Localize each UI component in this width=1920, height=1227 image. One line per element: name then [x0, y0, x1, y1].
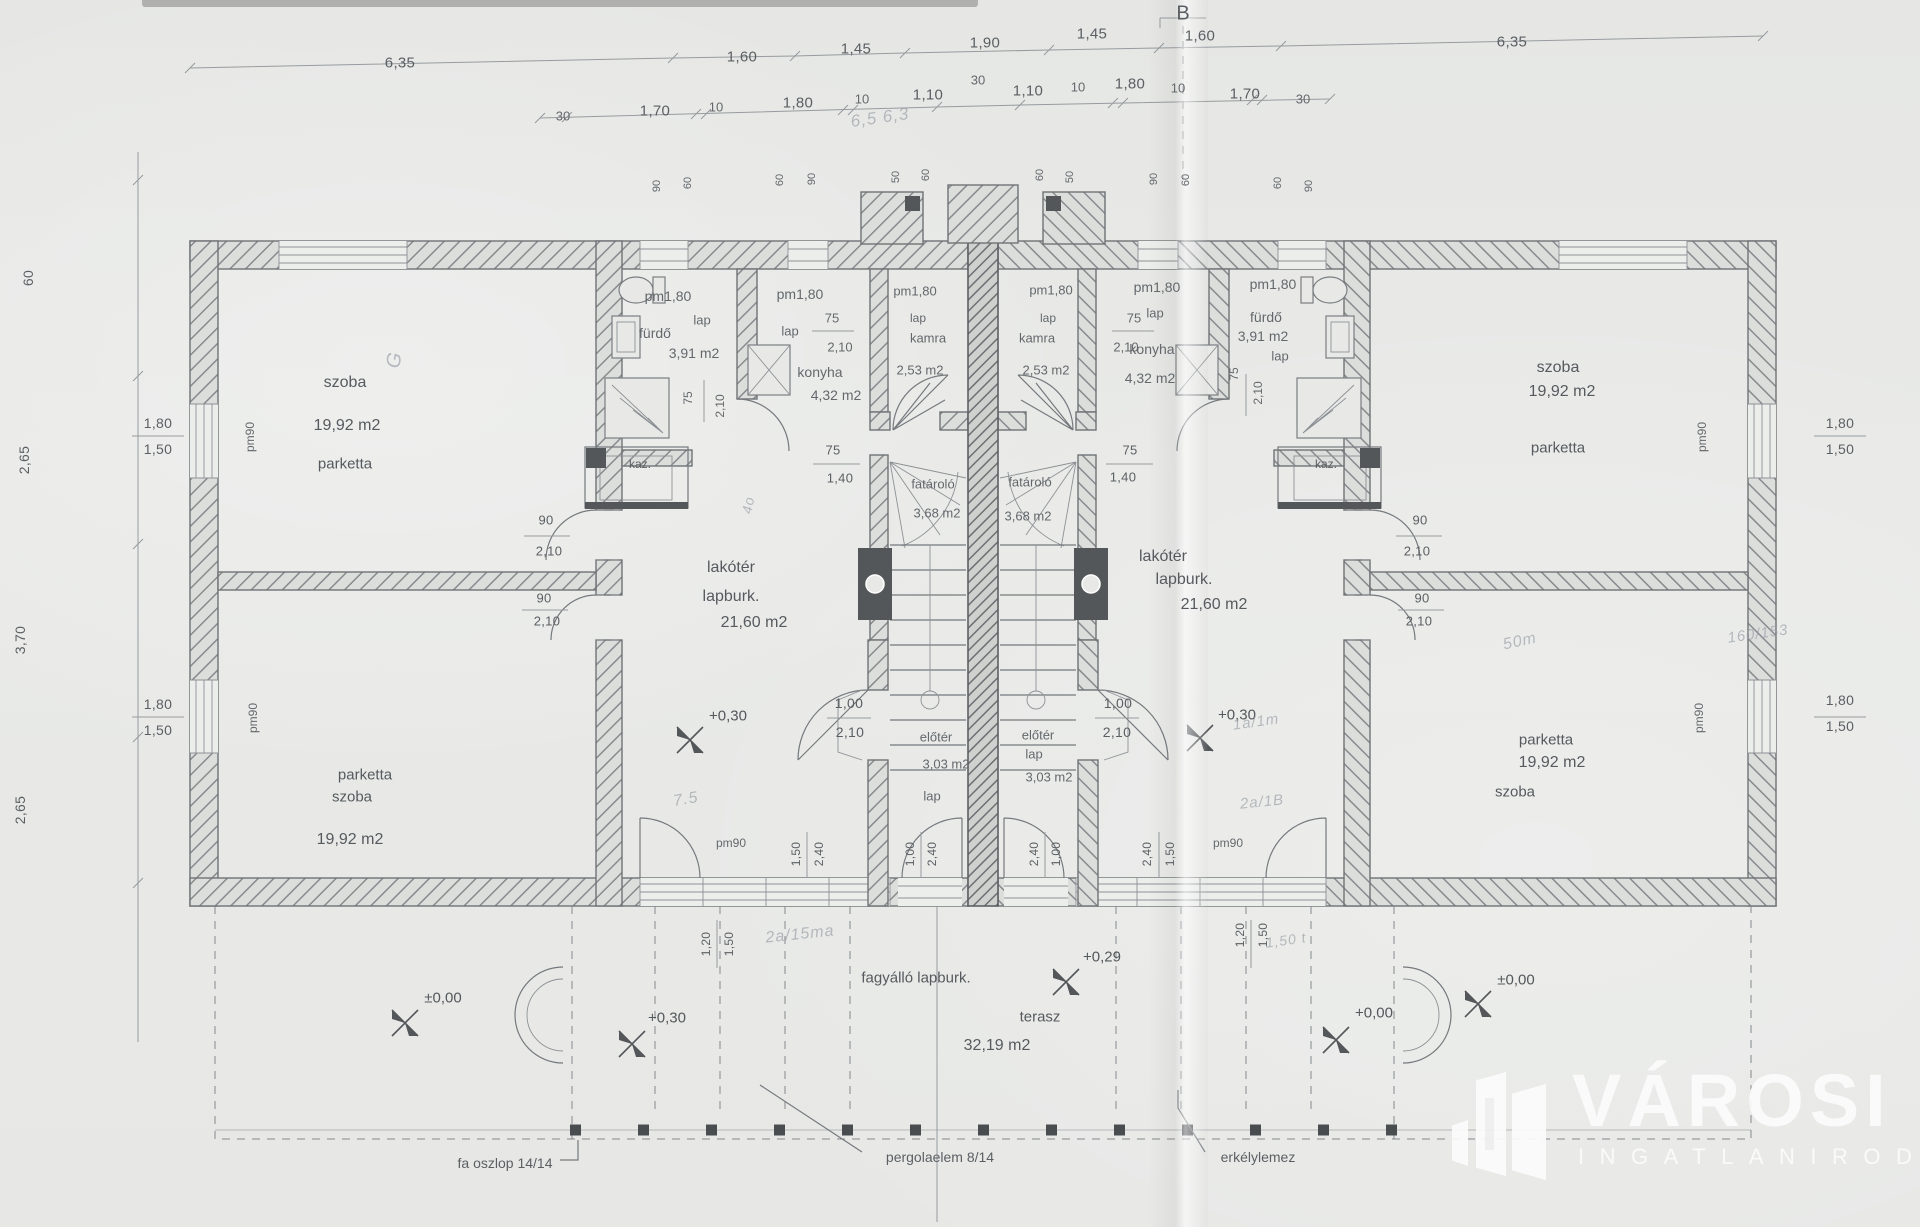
label-dim: 75: [1122, 443, 1137, 458]
label-room: lakótér: [1139, 548, 1187, 566]
label-dim: 1,90: [970, 35, 1000, 52]
label-hand: 7.5: [672, 789, 700, 811]
label-sml: 75: [1227, 367, 1241, 380]
label-ann: kaz.: [629, 457, 651, 471]
plan-labels-layer: 6,351,601,451,901,451,606,35301,70101,80…: [0, 0, 1920, 1227]
label-sml: konyha: [797, 364, 842, 380]
label-vert: 90: [1148, 173, 1160, 185]
label-dim: 2,40: [1027, 842, 1041, 867]
label-dim: 90: [538, 513, 553, 528]
label-sml: pm1,80: [893, 284, 936, 299]
label-hand: 1,50 t: [1265, 929, 1308, 951]
label-vert: 60: [920, 169, 932, 181]
label-dim: 1,20: [699, 932, 713, 957]
label-dim: 1,50: [144, 722, 172, 738]
buildings-icon: [1448, 1062, 1558, 1182]
label-lvl: ±0,00: [1497, 972, 1534, 989]
label-sml: 3,68 m2: [1005, 509, 1052, 524]
label-dim: 2,10: [534, 614, 561, 629]
label-dim: 1,10: [1013, 83, 1043, 100]
label-vert: 90: [1303, 180, 1315, 192]
label-hand: G: [382, 350, 408, 370]
label-dim: 1,60: [727, 49, 757, 66]
label-sml: 4,32 m2: [1125, 370, 1176, 386]
label-dim: 1,00: [835, 695, 863, 711]
label-dim: 90: [1414, 591, 1429, 606]
label-lvl: +0,30: [648, 1010, 686, 1027]
label-room: 19,92 m2: [1519, 754, 1586, 772]
label-room: 32,19 m2: [964, 1037, 1031, 1055]
label-hand: 2a/1B: [1239, 791, 1285, 813]
label-dim: 1,80: [1115, 76, 1145, 93]
label-sml: előtér: [920, 730, 953, 745]
label-sml: pm90: [243, 422, 257, 452]
label-sml: előtér: [1022, 728, 1055, 743]
label-room: szoba: [1537, 359, 1580, 377]
label-sml: konyha: [1129, 341, 1174, 357]
label-dim: 2,40: [1140, 842, 1154, 867]
label-sml: 30: [971, 73, 985, 88]
label-sml: 10: [1171, 81, 1185, 96]
label-room: lakótér: [707, 559, 755, 577]
label-dim: 1,10: [913, 87, 943, 104]
label-vert: 50: [890, 171, 902, 183]
label-vert: 90: [806, 173, 818, 185]
label-sml: pm90: [716, 836, 746, 850]
label-sml: kamra: [910, 331, 946, 346]
label-sml: 10: [1071, 80, 1085, 95]
label-room: 19,92 m2: [1529, 383, 1596, 401]
label-sml: fatároló: [911, 477, 954, 492]
label-vert: 60: [774, 174, 786, 186]
label-room: 19,92 m2: [317, 831, 384, 849]
label-dim: 2,10: [836, 724, 864, 740]
label-sml: pm1,80: [777, 286, 824, 302]
label-dim: 2,10: [536, 544, 563, 559]
label-dim: 1,20: [1233, 923, 1247, 948]
label-sml: lap: [923, 789, 940, 804]
label-sml: 75: [681, 391, 695, 404]
label-dim: 1,80: [1826, 692, 1854, 708]
label-hand: 6,5 6,3: [849, 104, 910, 132]
label-sml: 30: [1296, 92, 1310, 107]
label-sml: lap: [781, 324, 798, 339]
label-dim: 90: [1412, 513, 1427, 528]
label-dim: 1,45: [1077, 26, 1107, 43]
label-hand: 50m: [1501, 630, 1538, 655]
label-sml: 4,32 m2: [811, 387, 862, 403]
label-dim: 1,40: [1110, 470, 1137, 485]
label-dim: 1,50: [722, 932, 736, 957]
label-room: lapburk.: [703, 588, 760, 606]
label-dim: 1,70: [640, 103, 670, 120]
label-sml: kamra: [1019, 331, 1055, 346]
label-sml: 2,53 m2: [897, 363, 944, 378]
label-vert: 50: [1064, 171, 1076, 183]
label-dim: 3,70: [12, 626, 28, 654]
label-dim: 1,80: [144, 696, 172, 712]
label-vert: 60: [1034, 169, 1046, 181]
label-sml: 10: [709, 100, 723, 115]
label-room: 21,60 m2: [721, 614, 788, 632]
logo-name: VÁROSI: [1572, 1062, 1920, 1140]
label-sml: 2,10: [713, 394, 727, 417]
label-sml: 2,10: [1251, 381, 1265, 404]
label-dim: 2,10: [1404, 544, 1431, 559]
label-sml: lap: [1025, 747, 1042, 762]
label-room: parketta: [1519, 732, 1573, 749]
label-dim: 1,50: [144, 441, 172, 457]
label-room: lapburk.: [1156, 571, 1213, 589]
logo-subtitle: INGATLANIRODA: [1578, 1144, 1920, 1170]
label-sml: lap: [1146, 306, 1163, 321]
label-sml: lap: [1040, 311, 1056, 325]
label-dim: 2,40: [812, 842, 826, 867]
label-room: fagyálló lapburk.: [861, 970, 970, 987]
label-hand: 2a/15ma: [765, 922, 836, 947]
label-ann: erkélylemez: [1221, 1149, 1296, 1165]
label-sml: lap: [910, 311, 926, 325]
label-lvl: +0,00: [1355, 1005, 1393, 1022]
label-dim: 1,00: [1049, 842, 1063, 867]
label-vert: 90: [651, 180, 663, 192]
label-sml: 3,03 m2: [923, 757, 970, 772]
label-sml: pm1,80: [645, 288, 692, 304]
label-dim: 2,10: [1406, 614, 1433, 629]
label-room: terasz: [1020, 1009, 1061, 1026]
label-room: szoba: [324, 374, 367, 392]
label-sml: 30: [556, 109, 570, 124]
label-sml: 3,91 m2: [1238, 328, 1289, 344]
label-dim: 1,50: [789, 842, 803, 867]
label-dim: 1,50: [1163, 842, 1177, 867]
label-dim: 1,80: [144, 415, 172, 431]
label-sml: fürdő: [639, 325, 671, 341]
label-sml: 10: [855, 92, 869, 107]
label-sml: 2,10: [827, 340, 852, 355]
label-lvl: +0,30: [709, 708, 747, 725]
label-dim: 2,65: [16, 446, 32, 474]
label-hand: 4o: [739, 495, 758, 515]
label-sml: pm90: [1695, 422, 1709, 452]
label-vert: 60: [1180, 174, 1192, 186]
label-dim: 2,10: [1103, 724, 1131, 740]
label-dim: 1,40: [827, 471, 854, 486]
label-dim: 1,80: [1826, 415, 1854, 431]
label-room: 19,92 m2: [314, 417, 381, 435]
label-sml: pm1,80: [1250, 276, 1297, 292]
label-dim: 1,80: [783, 95, 813, 112]
label-dim: 6,35: [385, 55, 415, 72]
label-dim: 1,00: [1104, 695, 1132, 711]
label-room: szoba: [332, 789, 372, 806]
label-ann: kaz.: [1315, 457, 1337, 471]
label-dim: 1,50: [1826, 441, 1854, 457]
label-room: parketta: [338, 767, 392, 784]
label-dim: 90: [536, 591, 551, 606]
label-dim: 1,50: [1826, 718, 1854, 734]
label-dim: 2,40: [925, 842, 939, 867]
label-sml: 3,91 m2: [669, 345, 720, 361]
label-sml: pm90: [246, 703, 260, 733]
label-dim: 1,60: [1185, 28, 1215, 45]
label-dim: 1,70: [1230, 86, 1260, 103]
label-room: szoba: [1495, 784, 1535, 801]
label-dim: 2,65: [12, 796, 28, 824]
label-sml: lap: [693, 313, 710, 328]
label-ann: B: [1176, 3, 1189, 26]
label-sml: pm1,80: [1029, 283, 1072, 298]
label-room: parketta: [318, 456, 372, 473]
label-sml: pm90: [1213, 836, 1243, 850]
label-dim: 60: [20, 270, 36, 286]
label-sml: lap: [1271, 349, 1288, 364]
label-sml: pm90: [1692, 703, 1706, 733]
watermark-logo: VÁROSI INGATLANIRODA: [1448, 1062, 1893, 1192]
label-dim: 1,00: [903, 842, 917, 867]
label-sml: pm1,80: [1134, 279, 1181, 295]
label-vert: 60: [682, 177, 694, 189]
label-room: parketta: [1531, 440, 1585, 457]
label-dim: 1,45: [841, 41, 871, 58]
label-dim: 75: [825, 443, 840, 458]
label-room: 21,60 m2: [1181, 596, 1248, 614]
label-sml: 75: [1127, 311, 1141, 326]
label-hand: 160/153: [1726, 621, 1789, 646]
label-sml: fürdő: [1250, 309, 1282, 325]
label-sml: 3,03 m2: [1026, 770, 1073, 785]
label-sml: 3,68 m2: [914, 506, 961, 521]
label-sml: fatároló: [1008, 475, 1051, 490]
label-vert: 60: [1272, 177, 1284, 189]
label-ann: pergolaelem 8/14: [886, 1149, 994, 1165]
label-ann: fa oszlop 14/14: [458, 1155, 553, 1171]
label-sml: 2,53 m2: [1023, 363, 1070, 378]
label-dim: 6,35: [1497, 34, 1527, 51]
label-lvl: ±0,00: [424, 990, 461, 1007]
label-sml: 75: [825, 311, 839, 326]
label-lvl: +0,29: [1083, 949, 1121, 966]
